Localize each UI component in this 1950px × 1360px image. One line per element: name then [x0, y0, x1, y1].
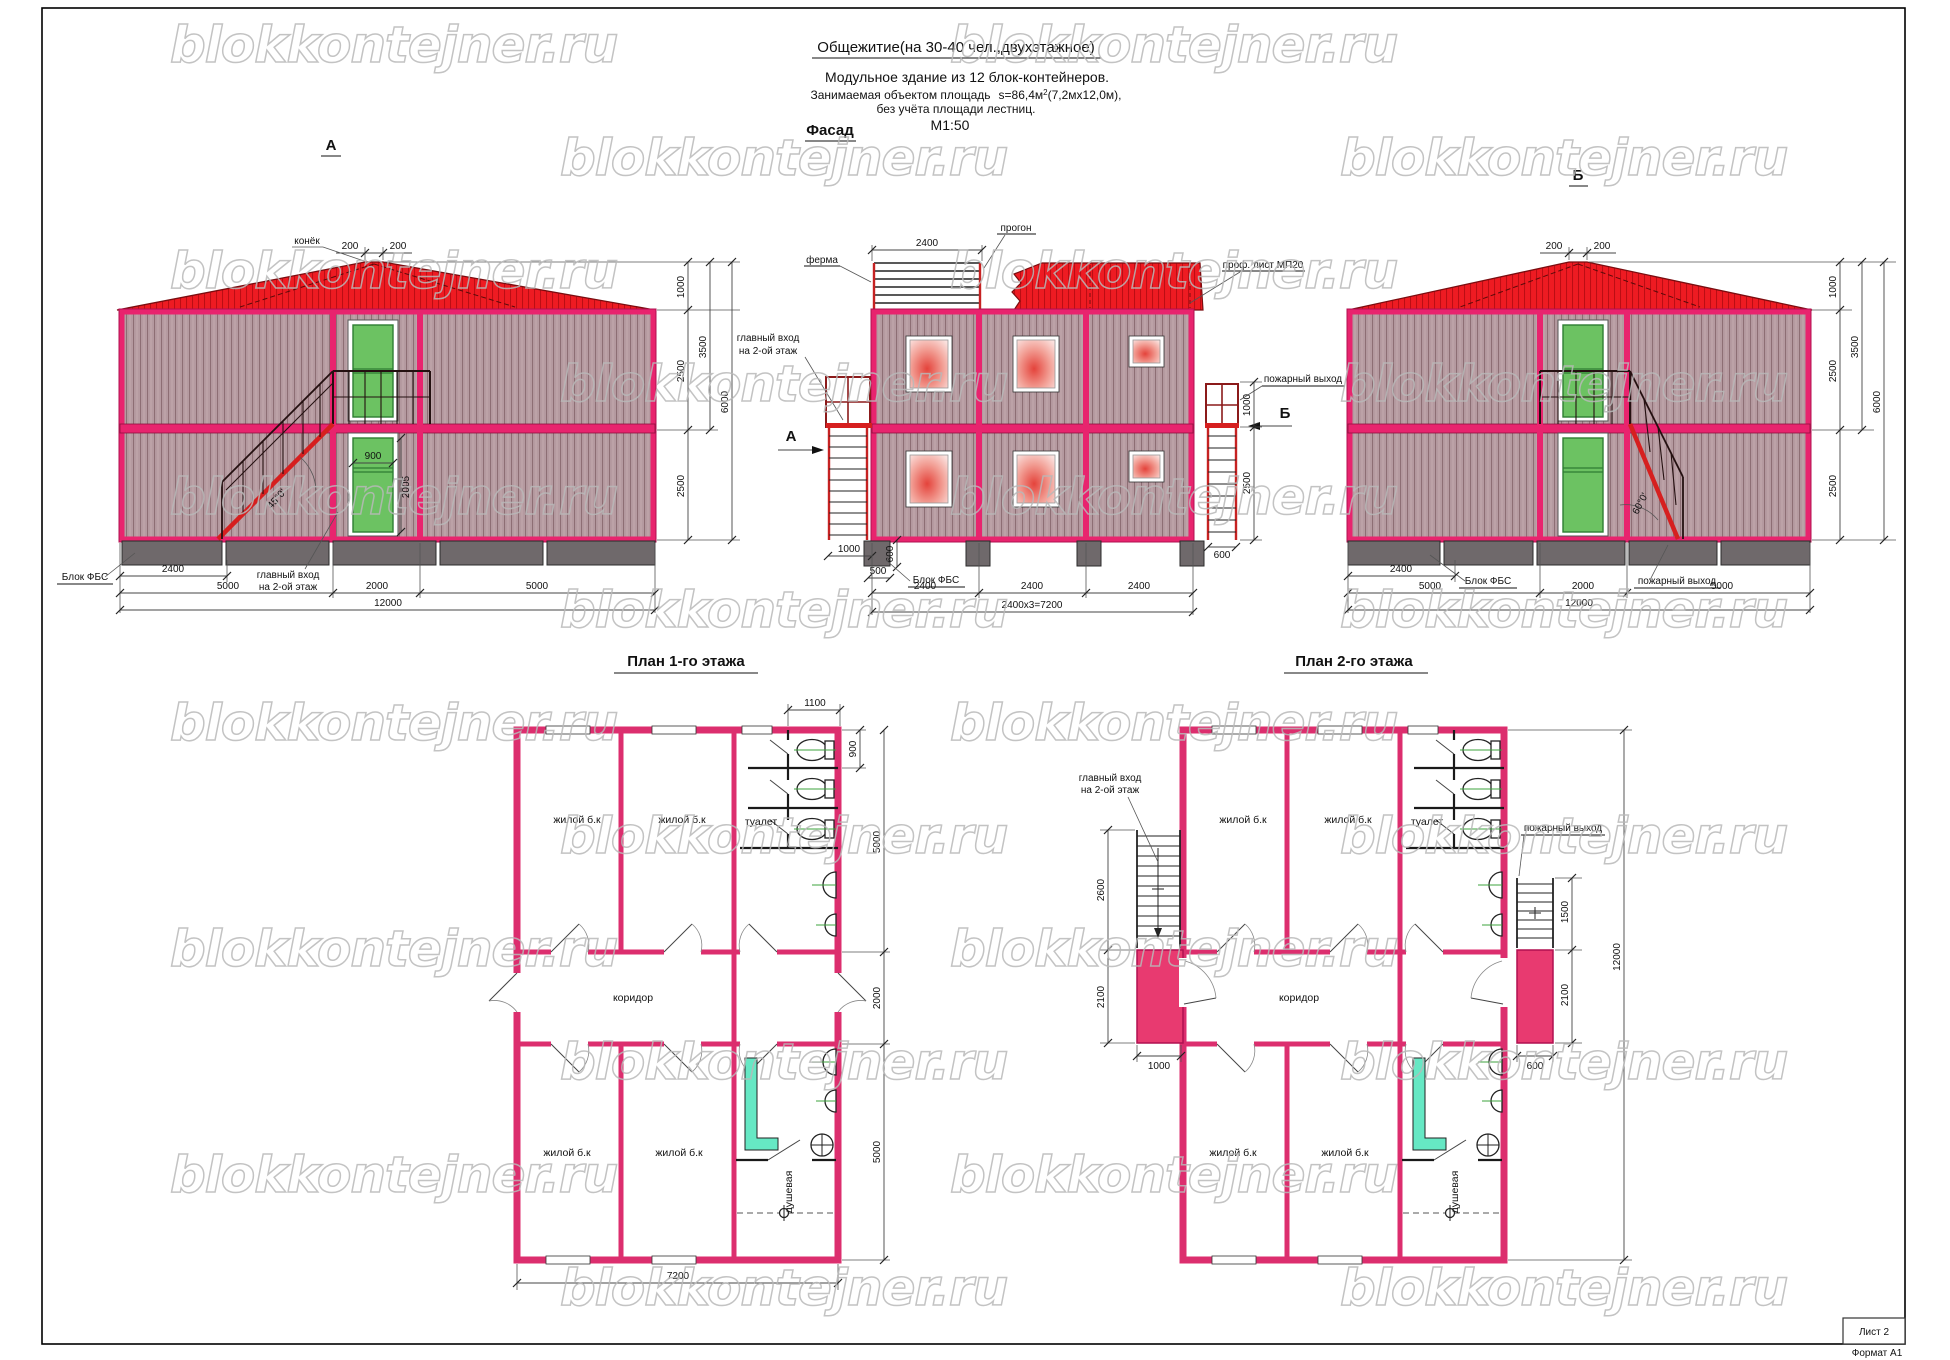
roof-b [1348, 262, 1812, 310]
plan2-shower-label: душевая [1449, 1171, 1461, 1214]
entry-label-a-1: главный вход [257, 570, 320, 581]
watermark-text: blokkontejner.ru [170, 1146, 618, 1204]
plan2-dim-2600: 2600 [1096, 878, 1107, 901]
sheet-border [42, 8, 1905, 1344]
plan1-room-bm: жилой б.к [655, 1147, 703, 1159]
watermark-text: blokkontejner.ru [560, 1033, 1008, 1091]
drawing-canvas: Общежитие(на 30-40 чел.,двухэтажное) Мод… [0, 0, 1950, 1360]
foundation-facade [864, 541, 1204, 566]
dim-1000-a: 1000 [676, 275, 687, 298]
purlin-label: прогон [1000, 223, 1031, 234]
area-note-line2: без учёта площади лестниц. [877, 102, 1036, 116]
plan2-dim-2100l: 2100 [1096, 985, 1107, 1008]
watermark-text: blokkontejner.ru [950, 694, 1398, 752]
dim-600-right: 600 [1214, 550, 1231, 561]
sheet-number: Лист 2 [1859, 1327, 1890, 1338]
plan2-entry-label-2: на 2-ой этаж [1081, 785, 1140, 796]
watermark-text: blokkontejner.ru [560, 807, 1008, 865]
section-marker-a: А [786, 428, 797, 445]
plan1-shower-label: душевая [783, 1171, 795, 1214]
plan2-title: План 2-го этажа [1295, 653, 1413, 670]
section-marker-b: Б [1280, 405, 1291, 422]
plan1-dim-1100: 1100 [804, 698, 826, 709]
watermark-text: blokkontejner.ru [170, 242, 618, 300]
watermark-text: blokkontejner.ru [950, 16, 1398, 74]
watermark-text: blokkontejner.ru [170, 468, 618, 526]
dim-5000r-a: 5000 [526, 581, 549, 592]
watermark-text: blokkontejner.ru [1340, 1259, 1788, 1317]
entry-label-a-2: на 2-ой этаж [259, 582, 318, 593]
dim-12000-a: 12000 [374, 598, 402, 609]
dim-5000l-a: 5000 [217, 581, 240, 592]
dim-2500u-b: 2500 [1828, 359, 1839, 382]
watermark-text: blokkontejner.ru [170, 920, 618, 978]
watermark-text: blokkontejner.ru [560, 355, 1008, 413]
watermark-text: blokkontejner.ru [1340, 129, 1788, 187]
watermark-text: blokkontejner.ru [1340, 807, 1788, 865]
plan2-corridor: коридор [1279, 992, 1319, 1004]
dim-2400-3: 2400 [1128, 581, 1151, 592]
elevation-a-title: А [326, 137, 337, 154]
watermark-text: blokkontejner.ru [560, 1259, 1008, 1317]
watermark-text: blokkontejner.ru [950, 920, 1398, 978]
watermark-text: blokkontejner.ru [560, 581, 1008, 639]
watermark-text: blokkontejner.ru [950, 242, 1398, 300]
fbs-label-a: Блок ФБС [62, 572, 108, 583]
dim-facade-total: 2400х3=7200 [1002, 600, 1063, 611]
dim-1000-right: 1000 [1242, 393, 1253, 416]
entry-label-f-1: главный вход [737, 333, 800, 344]
plan2-fire-stair [1471, 878, 1553, 1043]
watermark-text: blokkontejner.ru [950, 1146, 1398, 1204]
plan2-room-tl: жилой б.к [1219, 814, 1267, 826]
drawing-sheet: Общежитие(на 30-40 чел.,двухэтажное) Мод… [0, 0, 1950, 1360]
truss-label: ферма [806, 254, 838, 266]
dim-ridge-left-b: 200 [1546, 241, 1563, 252]
plan1-dim-900: 900 [848, 740, 859, 757]
plan2-dim-2100r: 2100 [1560, 983, 1571, 1006]
plan1-dim-2000: 2000 [872, 986, 883, 1009]
dim-2500l-b: 2500 [1828, 474, 1839, 497]
dim-1000-left: 1000 [838, 544, 861, 555]
area-note-line1: Занимаемая объектом площадьs=86,4м2(7,2м… [811, 88, 1122, 102]
watermark-text: blokkontejner.ru [170, 694, 618, 752]
dim-2400-b: 2400 [1390, 564, 1413, 575]
foundation-a [122, 541, 655, 565]
dim-600-left: 600 [885, 545, 896, 562]
dim-ridge-right-b: 200 [1594, 241, 1611, 252]
watermark-text: blokkontejner.ru [1340, 1033, 1788, 1091]
watermark-text: blokkontejner.ru [1340, 581, 1788, 639]
watermark-text: blokkontejner.ru [560, 129, 1008, 187]
plan2-entry-label-1: главный вход [1079, 773, 1142, 784]
sheet-format: Формат А1 [1852, 1348, 1903, 1359]
watermark-text: blokkontejner.ru [950, 468, 1398, 526]
watermark-text: blokkontejner.ru [170, 16, 618, 74]
dim-6000-b: 6000 [1872, 390, 1883, 413]
plan2-dim-1000: 1000 [1148, 1061, 1171, 1072]
dim-door-width-a: 900 [365, 451, 382, 462]
fire-exit-label-f: пожарный выход [1264, 374, 1342, 385]
watermark-text: blokkontejner.ru [1340, 355, 1788, 413]
dim-2400-top: 2400 [916, 238, 939, 249]
plan1-corridor: коридор [613, 992, 653, 1004]
dim-2000-a: 2000 [366, 581, 389, 592]
foundation-b [1348, 541, 1810, 565]
plan2-dim-12000: 12000 [1612, 943, 1623, 971]
plan2-dim-1500: 1500 [1560, 900, 1571, 923]
dim-3500-b: 3500 [1850, 335, 1861, 358]
watermark-layer: blokkontejner.rublokkontejner.rublokkont… [170, 16, 1788, 1317]
dim-2400-2: 2400 [1021, 581, 1044, 592]
dim-1000-b: 1000 [1828, 275, 1839, 298]
dim-2400-a: 2400 [162, 564, 185, 575]
dim-2500l-a: 2500 [676, 474, 687, 497]
door-b-lower [1558, 433, 1608, 536]
plan1-title: План 1-го этажа [627, 653, 745, 670]
footer: Лист 2 Формат А1 [1843, 1318, 1905, 1359]
plan1-dim-5000b: 5000 [872, 1140, 883, 1163]
